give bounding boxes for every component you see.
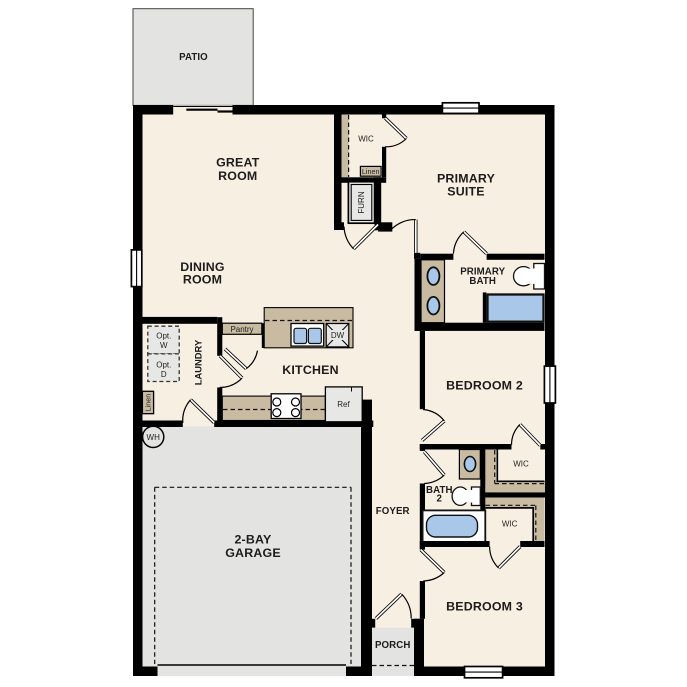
svg-text:Pantry: Pantry <box>230 325 253 334</box>
svg-text:WIC: WIC <box>502 520 518 529</box>
svg-text:BEDROOM 3: BEDROOM 3 <box>446 599 523 613</box>
svg-text:DW: DW <box>331 331 345 340</box>
svg-text:KITCHEN: KITCHEN <box>282 363 338 377</box>
svg-text:LAUNDRY: LAUNDRY <box>193 339 204 385</box>
svg-text:Opt.: Opt. <box>156 332 171 341</box>
svg-text:SUITE: SUITE <box>447 185 485 199</box>
svg-text:Opt.: Opt. <box>156 361 171 370</box>
svg-text:ROOM: ROOM <box>218 169 257 183</box>
svg-text:WIC: WIC <box>513 460 529 469</box>
svg-text:BEDROOM 2: BEDROOM 2 <box>446 379 523 393</box>
svg-text:BATH: BATH <box>469 276 496 287</box>
svg-text:W: W <box>160 341 168 350</box>
svg-text:PATIO: PATIO <box>179 52 208 63</box>
svg-text:Linen: Linen <box>362 167 380 176</box>
svg-text:Linen: Linen <box>144 394 153 412</box>
svg-text:2: 2 <box>437 494 443 505</box>
svg-text:D: D <box>161 370 167 379</box>
svg-text:PORCH: PORCH <box>375 640 411 651</box>
svg-text:FOYER: FOYER <box>376 506 410 517</box>
svg-text:ROOM: ROOM <box>183 273 222 287</box>
svg-text:Ref: Ref <box>337 400 350 409</box>
svg-text:GARAGE: GARAGE <box>225 546 281 560</box>
svg-text:WIC: WIC <box>358 134 374 143</box>
svg-text:PRIMARY: PRIMARY <box>437 171 496 185</box>
svg-text:WH: WH <box>147 433 161 442</box>
svg-text:2-BAY: 2-BAY <box>234 533 272 547</box>
svg-text:GREAT: GREAT <box>216 156 260 170</box>
svg-text:FURN: FURN <box>357 191 366 213</box>
